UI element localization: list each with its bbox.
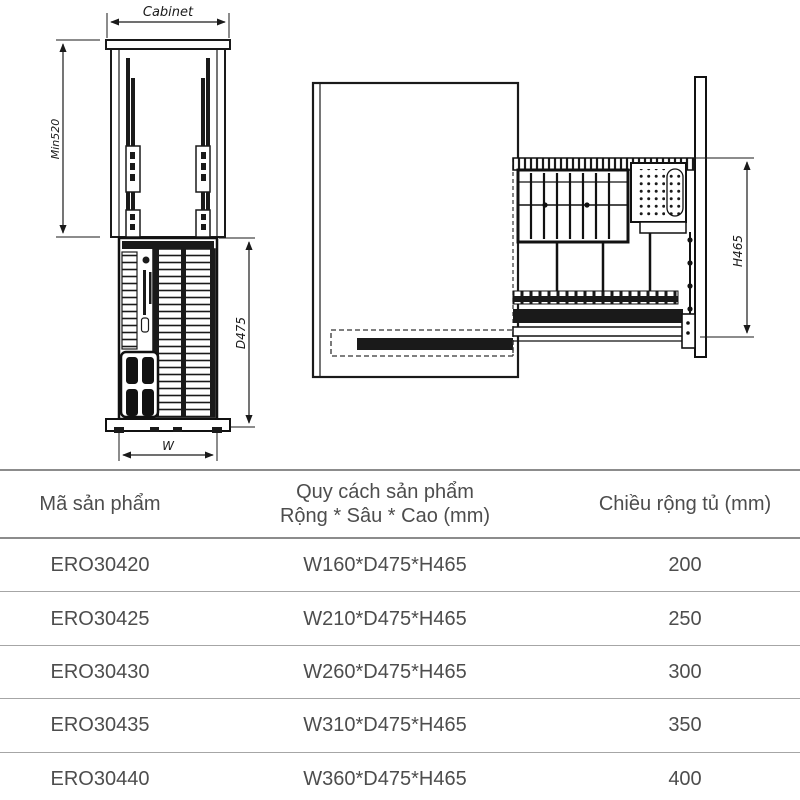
product-size: W160*D475*H465 [200, 553, 570, 577]
product-size: W360*D475*H465 [200, 767, 570, 791]
product-code: ERO30425 [0, 607, 200, 631]
cabinet-width: 350 [570, 713, 800, 737]
table-header-row: Mã sản phẩm Quy cách sản phẩm Rộng * Sâu… [0, 469, 800, 539]
cabinet-width: 250 [570, 607, 800, 631]
h465-dim-label: H465 [731, 235, 745, 267]
product-spec-sheet: Cabinet [0, 0, 800, 800]
col-header-spec: Quy cách sản phẩm Rộng * Sâu * Cao (mm) [200, 480, 570, 528]
col-header-cabinet-width: Chiều rộng tủ (mm) [570, 492, 800, 516]
cabinet-width: 200 [570, 553, 800, 577]
product-size: W310*D475*H465 [200, 713, 570, 737]
dimension-min520: Min520 [49, 40, 100, 237]
dimension-d475: D475 [219, 238, 255, 427]
min520-dim-label: Min520 [49, 119, 62, 160]
basket-side-view [513, 158, 695, 341]
product-size: W210*D475*H465 [200, 607, 570, 631]
dimension-cabinet-width: Cabinet [107, 5, 229, 38]
table-row: ERO30420 W160*D475*H465 200 [0, 539, 800, 592]
product-code: ERO30435 [0, 713, 200, 737]
cabinet-width: 400 [570, 767, 800, 791]
spec-table: Mã sản phẩm Quy cách sản phẩm Rộng * Sâu… [0, 469, 800, 800]
col-header-product-code: Mã sản phẩm [0, 492, 200, 516]
side-view: H465 [313, 77, 754, 377]
basket-plan-view [106, 238, 230, 433]
product-size: W260*D475*H465 [200, 660, 570, 684]
product-code: ERO30420 [0, 553, 200, 577]
dimension-w: W [119, 433, 217, 461]
table-row: ERO30435 W310*D475*H465 350 [0, 699, 800, 752]
col-header-spec-line1: Quy cách sản phẩm [200, 480, 570, 504]
table-row: ERO30425 W210*D475*H465 250 [0, 592, 800, 645]
table-row: ERO30430 W260*D475*H465 300 [0, 646, 800, 699]
front-view: Cabinet [49, 5, 255, 461]
d475-dim-label: D475 [234, 317, 248, 349]
cabinet-side [313, 83, 518, 377]
table-row: ERO30440 W360*D475*H465 400 [0, 753, 800, 800]
cabinet-dim-label: Cabinet [143, 5, 194, 20]
product-code: ERO30440 [0, 767, 200, 791]
product-code: ERO30430 [0, 660, 200, 684]
w-dim-label: W [162, 439, 175, 453]
technical-drawing: Cabinet [0, 0, 800, 469]
cabinet-width: 300 [570, 660, 800, 684]
cabinet-front [106, 40, 230, 237]
col-header-spec-line2: Rộng * Sâu * Cao (mm) [200, 504, 570, 528]
